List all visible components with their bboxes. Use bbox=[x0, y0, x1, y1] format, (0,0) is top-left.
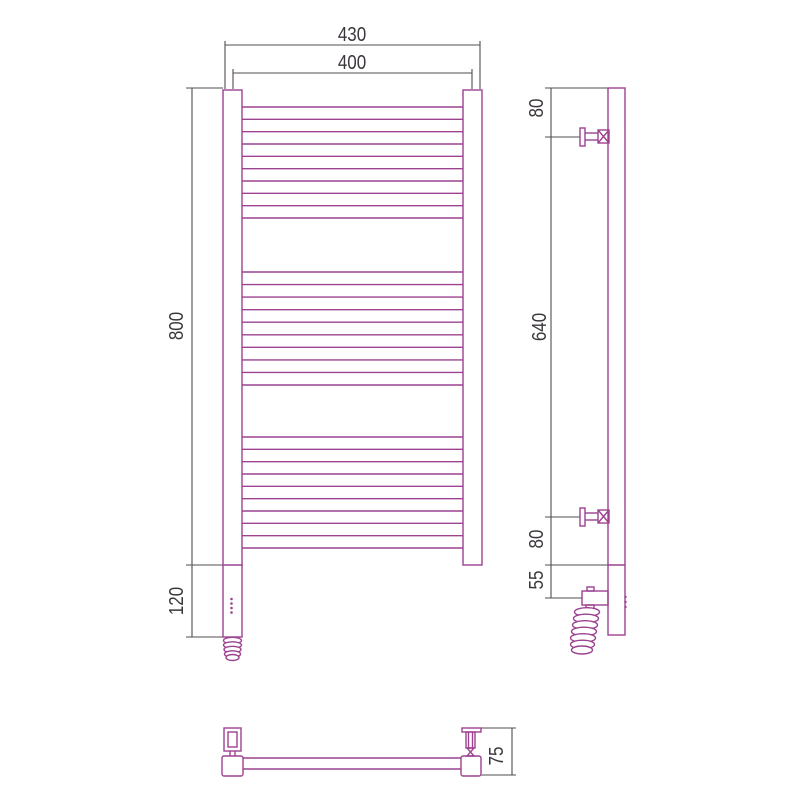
bottom-view bbox=[222, 728, 516, 776]
dim-label-bracket-spacing: 640 bbox=[529, 297, 551, 357]
dim-label-heater-section: 120 bbox=[166, 571, 188, 631]
technical-drawing-canvas: 430 400 800 120 80 640 80 55 75 bbox=[0, 0, 800, 800]
bottom-bar bbox=[222, 756, 481, 776]
dim-label-overall-height: 800 bbox=[166, 296, 188, 356]
power-cable-coil-front bbox=[224, 637, 242, 660]
indicator-dots-side bbox=[624, 596, 626, 608]
left-collector-tube bbox=[223, 90, 242, 637]
side-view bbox=[545, 88, 627, 654]
dim-label-top-bracket-offset: 80 bbox=[526, 78, 548, 138]
front-rail-outline bbox=[223, 90, 482, 637]
front-view bbox=[186, 41, 482, 661]
front-rungs bbox=[242, 107, 463, 548]
side-tube bbox=[608, 88, 625, 635]
bottom-bracket-right bbox=[462, 728, 481, 756]
wall-bracket-bottom bbox=[580, 508, 609, 526]
dim-label-rail-width: 400 bbox=[322, 52, 382, 74]
dim-label-overall-width: 430 bbox=[322, 24, 382, 46]
wall-bracket-top bbox=[580, 128, 609, 146]
heater-box-side bbox=[582, 587, 608, 605]
indicator-dots-front bbox=[230, 598, 233, 614]
power-cable-coil-side bbox=[571, 605, 600, 654]
right-collector-tube bbox=[463, 90, 482, 565]
dim-label-cable-outlet-offset: 55 bbox=[526, 550, 548, 610]
drawing-svg bbox=[0, 0, 800, 800]
dim-label-depth: 75 bbox=[486, 726, 508, 786]
bottom-bracket-left bbox=[224, 728, 241, 756]
